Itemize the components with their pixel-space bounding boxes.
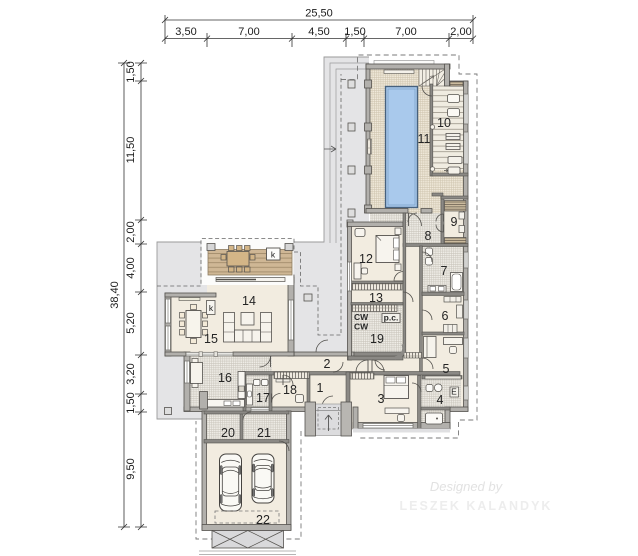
svg-text:CW: CW [354,322,369,332]
svg-text:16: 16 [218,371,232,385]
svg-text:4,50: 4,50 [308,26,329,38]
svg-text:21: 21 [257,426,271,440]
svg-text:38,40: 38,40 [109,281,121,309]
svg-text:LESZEK KALANDYK: LESZEK KALANDYK [400,499,553,513]
svg-text:22: 22 [256,513,270,527]
svg-text:4: 4 [437,393,444,407]
svg-text:7,00: 7,00 [395,26,416,38]
svg-text:18: 18 [283,383,297,397]
svg-text:E: E [451,387,457,397]
svg-text:17: 17 [256,391,270,405]
svg-text:1: 1 [317,381,324,395]
svg-text:7,00: 7,00 [238,26,259,38]
svg-text:2,00: 2,00 [450,26,471,38]
svg-text:15: 15 [204,332,218,346]
svg-text:1,50: 1,50 [125,61,137,82]
svg-text:19: 19 [370,332,384,346]
svg-text:7: 7 [441,264,448,278]
svg-text:8: 8 [425,229,432,243]
svg-text:6: 6 [442,309,449,323]
svg-text:5: 5 [443,362,450,376]
svg-text:11: 11 [418,132,431,146]
svg-text:20: 20 [221,426,235,440]
svg-text:14: 14 [242,294,256,308]
svg-text:2: 2 [324,357,331,371]
svg-text:1,50: 1,50 [125,392,137,413]
svg-text:CW: CW [354,312,369,322]
svg-text:3,20: 3,20 [125,363,137,384]
svg-text:12: 12 [359,252,373,266]
svg-text:3: 3 [378,392,385,406]
svg-text:13: 13 [369,291,383,305]
svg-text:11,50: 11,50 [125,137,137,164]
svg-text:2,00: 2,00 [125,221,137,242]
svg-text:10: 10 [437,116,451,130]
svg-text:9: 9 [451,215,458,229]
svg-text:4,00: 4,00 [125,257,137,278]
svg-text:1,50: 1,50 [344,26,365,38]
svg-text:3,50: 3,50 [175,26,196,38]
svg-text:5,20: 5,20 [125,312,137,333]
svg-text:25,50: 25,50 [305,8,333,20]
svg-text:Designed by: Designed by [430,479,504,494]
svg-text:p.c.: p.c. [384,313,399,323]
svg-text:9,50: 9,50 [125,458,137,479]
